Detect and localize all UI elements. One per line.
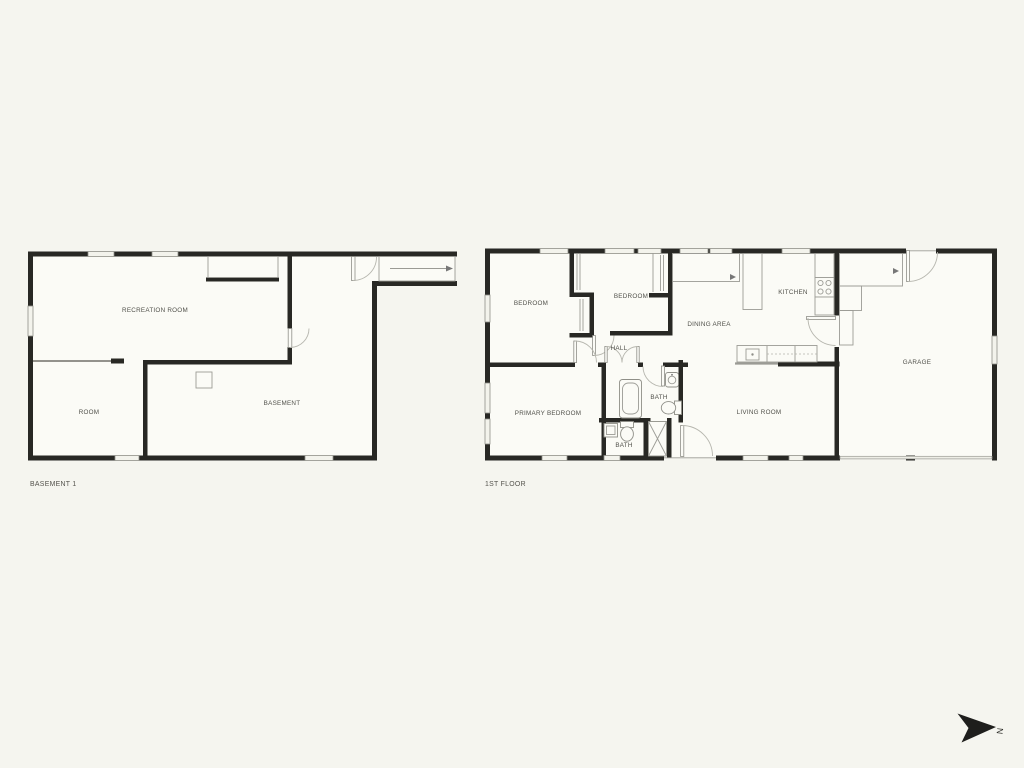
room-label-hall: HALL [611,345,628,352]
wall [28,252,33,461]
kitchen-peninsula-counter [743,254,762,310]
north-label: N [995,727,1006,734]
room-label-dining-area: DINING AREA [687,321,731,328]
wall [570,333,595,338]
window [305,456,333,461]
wall [936,249,997,254]
room-label-kitchen: KITCHEN [778,289,808,296]
window [605,249,634,254]
wall [143,360,148,461]
window [680,249,708,254]
window [540,249,568,254]
basement-floor-plan: RECREATION ROOMROOMBASEMENT BASEMENT 1 [28,252,457,489]
window [88,252,114,257]
door-leaf [352,257,356,281]
closet-door-leaf [637,347,639,363]
window [28,306,33,336]
window [542,456,567,461]
wall-cap [111,359,124,364]
wall [716,456,840,461]
wall [590,293,595,338]
window [485,295,490,322]
wall [570,249,575,298]
wall [206,278,279,282]
window [638,249,661,254]
door-leaf [807,317,836,320]
wall [288,252,293,329]
window [782,249,810,254]
kitchen-counter [815,297,834,315]
toilet-bowl [621,427,634,441]
room-label-bedroom: BEDROOM [614,293,648,300]
sink-faucet-icon [671,374,673,376]
wall [667,418,672,458]
door-leaf [574,341,577,363]
door-leaf [288,329,292,348]
room-label-room: ROOM [79,409,100,416]
window [152,252,178,257]
entry-door-leaf [681,426,684,457]
toilet-bowl [661,402,675,414]
north-arrow: N [958,714,1006,743]
sink-drain-icon [751,353,753,355]
room-label-garage: GARAGE [903,359,931,366]
wall [663,363,688,368]
window [743,456,768,461]
window [710,249,732,254]
wall [610,331,673,336]
room-label-bath: BATH [650,394,668,401]
kitchen-counter [815,254,834,278]
window [992,336,997,364]
wall [372,281,457,286]
wall [485,363,575,368]
window [789,456,803,461]
wall [638,363,643,368]
wall [644,421,649,458]
north-arrow-icon [958,714,997,743]
room-label-bedroom: BEDROOM [514,300,548,307]
window [115,456,139,461]
closet-door-leaf [605,347,607,363]
room-label-primary-bedroom: PRIMARY BEDROOM [515,410,582,417]
room-label-recreation-room: RECREATION ROOM [122,307,188,314]
wall [649,293,673,298]
wall [143,360,292,365]
room-label-living-room: LIVING ROOM [737,409,782,416]
window [604,456,620,461]
first-floor-plan: BEDROOMBEDROOMKITCHENDINING AREAHALLBATH… [485,249,997,489]
wall [372,281,377,461]
stove [815,278,834,298]
room-label-bath: BATH [615,442,633,449]
basement-title: BASEMENT 1 [30,481,77,488]
door-leaf [661,366,664,386]
door-leaf [907,251,910,282]
wall [485,456,664,461]
garage-door [840,456,992,459]
wall [835,249,840,316]
sink [604,424,618,438]
room-label-basement: BASEMENT [264,400,301,407]
wall [602,363,607,421]
floor-plan-page: RECREATION ROOMROOMBASEMENT BASEMENT 1 [0,0,1024,768]
window [485,383,490,413]
window [485,419,490,444]
first-floor-title: 1ST FLOOR [485,481,526,488]
wall [668,249,673,336]
